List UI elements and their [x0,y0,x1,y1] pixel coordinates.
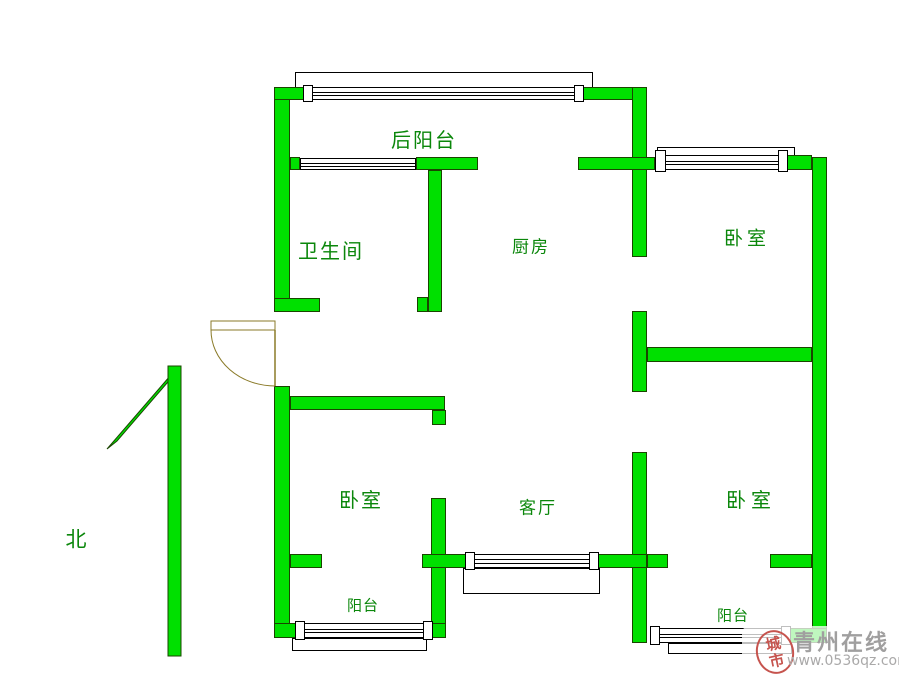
window-frame [465,552,475,570]
door-and-north-arrow-layer [0,0,899,691]
sw-bedroom-top-stub [432,410,446,425]
north-arrow-head [107,368,180,449]
ne-bedroom-top-wall [787,155,812,170]
back-balcony-window-sill [295,72,593,88]
sw-balcony-window [300,623,428,638]
entry-door-leaf [211,321,275,330]
label-kitchen: 厨房 [512,240,550,257]
back-balcony-wall-left [290,157,300,170]
back-balcony-window [310,87,582,100]
window-frame [778,150,788,172]
center-wall-lower [632,452,647,643]
bathroom-window [300,158,416,170]
back-balcony-wall-mid [416,157,478,170]
south-wall-stub-b [647,554,668,568]
se-bedroom-south-wall [770,554,812,568]
label-balcony-sw: 阳台 [347,599,379,614]
window-frame [303,85,313,102]
sw-balcony-window-sill [292,638,427,651]
back-balcony-wall-right [578,157,655,170]
window-frame [295,621,305,640]
entry-door-swing-arc [211,330,275,386]
right-bedrooms-divider [647,347,812,362]
bath-south-wall [274,298,320,312]
label-bathroom: 卫生间 [298,241,364,261]
window-frame [423,621,433,640]
center-wall-upper [632,87,647,257]
bath-kitchen-wall-foot [417,297,428,312]
center-wall-middle [632,311,647,392]
north-arrow-shaft [168,366,181,656]
label-back-balcony: 后阳台 [391,130,457,150]
right-wall [812,157,827,643]
label-north: 北 [66,530,87,551]
sw-bedroom-right-wall [431,498,446,638]
label-balcony-se: 阳台 [717,609,749,624]
window-frame [574,85,584,102]
south-wall-right [598,554,647,568]
label-bedroom-se: 卧室 [726,490,776,510]
bath-kitchen-wall [428,170,442,312]
watermark-site-url: www.0536qz.com [787,654,899,668]
left-wall-upper [274,87,290,312]
window-frame [655,150,666,172]
left-wall-lower [274,386,290,638]
window-frame [589,552,599,570]
label-bedroom-sw: 卧室 [339,490,383,510]
ne-bedroom-window [665,155,787,170]
window-frame [650,626,660,645]
watermark-site-name: 青州在线 [793,632,889,654]
floorplan-canvas: 后阳台卫生间厨房卧室卧室客厅卧室阳台阳台北 城 市 青州在线 www.0536q… [0,0,899,691]
living-room-window-sill [463,568,600,594]
label-living-room: 客厅 [519,501,557,518]
label-bedroom-ne: 卧室 [724,230,770,249]
sw-bedroom-top-wall [290,396,445,410]
living-room-window [468,554,598,568]
south-wall-stub-a [290,554,322,568]
